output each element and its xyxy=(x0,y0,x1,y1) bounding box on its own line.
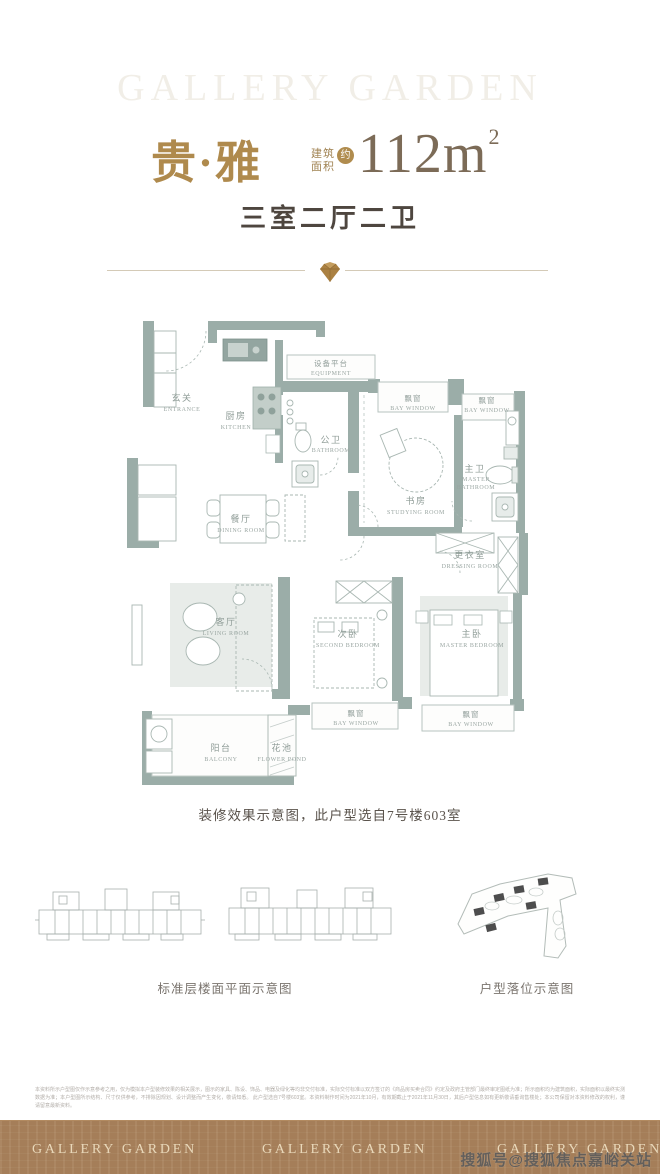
plan-bathroom-fixtures xyxy=(287,400,318,487)
room-study-en: STUDYING ROOM xyxy=(387,510,445,516)
room-master-bed-en: MASTER BEDROOM xyxy=(440,643,504,649)
room-bay-tr-zh: 飘窗 xyxy=(479,395,496,405)
room-balcony-zh: 阳台 xyxy=(210,742,231,753)
room-dressing-en: DRESSING ROOM xyxy=(442,564,499,570)
standard-floor-diagram xyxy=(35,880,395,960)
room-dining-zh: 餐厅 xyxy=(230,513,251,524)
floor-diagram-caption: 标准层楼面平面示意图 xyxy=(140,978,310,997)
room-second-bed-zh: 次卧 xyxy=(337,628,358,639)
room-bathroom-zh: 公卫 xyxy=(320,435,341,445)
room-flower-en: FLOWER POND xyxy=(257,757,306,763)
floor-plan: 玄关 ENTRANCE 厨房 KITCHEN 设备平台 EQUIPMENT 公卫… xyxy=(120,315,540,795)
building-outline-2 xyxy=(229,888,391,940)
unit-location-diagram xyxy=(452,862,602,962)
area-superscript: 2 xyxy=(488,124,500,149)
area-label: 建筑面积 xyxy=(311,148,335,174)
footer-brand-1: GALLERY GARDEN xyxy=(32,1142,197,1158)
plan-master-bath-fixtures xyxy=(486,411,519,521)
area-number: 112m xyxy=(358,123,487,185)
area-value: 112m2 xyxy=(358,122,500,186)
brand-ghost-title: GALLERY GARDEN xyxy=(0,66,660,110)
room-entrance-en: ENTRANCE xyxy=(164,407,201,413)
room-kitchen-en: KITCHEN xyxy=(221,425,252,431)
layout-subtitle: 三室二厅二卫 xyxy=(0,198,660,235)
room-master-bath-en2: BATHROOM xyxy=(457,485,496,491)
room-bay-bl-en: BAY WINDOW xyxy=(333,721,379,727)
site-diagram-caption: 户型落位示意图 xyxy=(462,978,592,997)
divider-line-right xyxy=(345,270,548,271)
room-study-zh: 书房 xyxy=(405,495,426,506)
room-bathroom-en: BATHROOM xyxy=(312,448,351,454)
unit-name: 贵·雅 xyxy=(151,126,262,191)
room-second-bed-en: SECOND BEDROOM xyxy=(316,643,380,649)
room-master-bed-zh: 主卧 xyxy=(461,628,482,639)
footer-brand-2: GALLERY GARDEN xyxy=(262,1142,427,1158)
room-living-zh: 客厅 xyxy=(215,616,236,627)
room-bay-bl-zh: 飘窗 xyxy=(348,708,365,718)
poster-page: GALLERY GARDEN 贵·雅 建筑面积 约 112m2 三室二厅二卫 xyxy=(0,0,660,1174)
plan-caption: 装修效果示意图，此户型选自7号楼603室 xyxy=(0,804,660,824)
plan-study-furniture xyxy=(364,395,443,523)
divider-line-left xyxy=(107,270,305,271)
disclaimer-text: 本资料所示户型图仅作示意参考之用，仅为模拟本户型装修效果的相关展示，图示的家具、… xyxy=(35,1086,625,1110)
plan-dining-furniture xyxy=(207,495,305,543)
room-bay-tr-en: BAY WINDOW xyxy=(464,408,510,414)
plan-kitchen-fixtures xyxy=(223,339,281,453)
plan-living-furniture xyxy=(132,583,272,691)
room-bay-tl-zh: 飘窗 xyxy=(405,393,422,403)
room-bay-tl-en: BAY WINDOW xyxy=(390,406,436,412)
room-dining-en: DINING ROOM xyxy=(217,528,264,534)
room-flower-zh: 花池 xyxy=(271,742,292,753)
room-dressing-zh: 更衣室 xyxy=(454,549,486,560)
building-outline-1 xyxy=(35,889,205,940)
room-bay-br-zh: 飘窗 xyxy=(463,709,480,719)
room-bay-br-en: BAY WINDOW xyxy=(448,722,494,728)
room-equipment-zh: 设备平台 xyxy=(314,358,348,368)
room-entrance-zh: 玄关 xyxy=(171,392,192,403)
plan-dressing-wardrobes xyxy=(436,533,518,593)
room-master-bath-en1: MASTER xyxy=(462,477,490,483)
watermark: 搜狐号@搜狐焦点嘉峪关站 xyxy=(460,1149,652,1170)
approx-badge: 约 xyxy=(337,147,354,164)
room-kitchen-zh: 厨房 xyxy=(225,410,246,421)
area-label-line1: 建筑 xyxy=(311,148,335,160)
room-living-en: LIVING ROOM xyxy=(203,631,250,637)
room-balcony-en: BALCONY xyxy=(204,757,237,763)
room-master-bath-zh: 主卫 xyxy=(464,463,485,474)
room-equipment-en: EQUIPMENT xyxy=(311,371,351,377)
area-label-line2: 面积 xyxy=(311,161,335,173)
diamond-gem-icon xyxy=(314,258,346,284)
